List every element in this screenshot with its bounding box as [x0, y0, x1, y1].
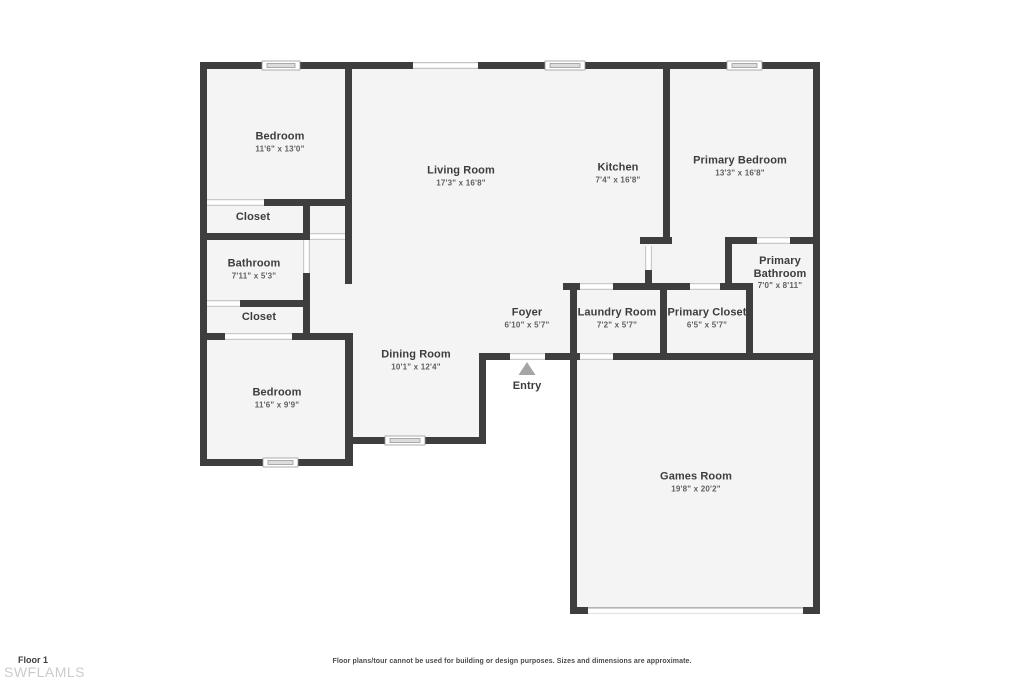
door-opening-primary-bathroom [757, 237, 790, 244]
disclaimer-text: Floor plans/tour cannot be used for buil… [0, 658, 1024, 665]
floor-plan: Bedroom 11'6" x 13'0" Living Room 17'3" … [0, 0, 1024, 682]
window-living-room [545, 61, 585, 70]
door-opening-closet-2 [207, 300, 240, 307]
window-bedroom-1 [262, 61, 300, 70]
door-opening-laundry-top [580, 283, 613, 290]
window-primary-bedroom [727, 61, 762, 70]
door-opening-closet-1 [207, 199, 264, 206]
door-opening-primary-closet [690, 283, 720, 290]
door-opening-bathroom [303, 240, 310, 273]
window-games-room-sliders [588, 607, 803, 614]
door-opening-kitchen [645, 246, 652, 270]
door-opening-bedroom-2 [225, 333, 292, 340]
door-opening-bathroom-nook [310, 233, 345, 240]
door-opening-games-room [580, 353, 613, 360]
window-living-room-band [413, 62, 478, 69]
mls-watermark: SWFLAMLS [4, 664, 85, 680]
entry-arrow-icon [519, 362, 536, 375]
window-dining-room [385, 436, 425, 445]
door-opening-entry [510, 353, 545, 360]
window-bedroom-2 [263, 458, 298, 467]
floor-plan-drawing [0, 0, 1024, 682]
